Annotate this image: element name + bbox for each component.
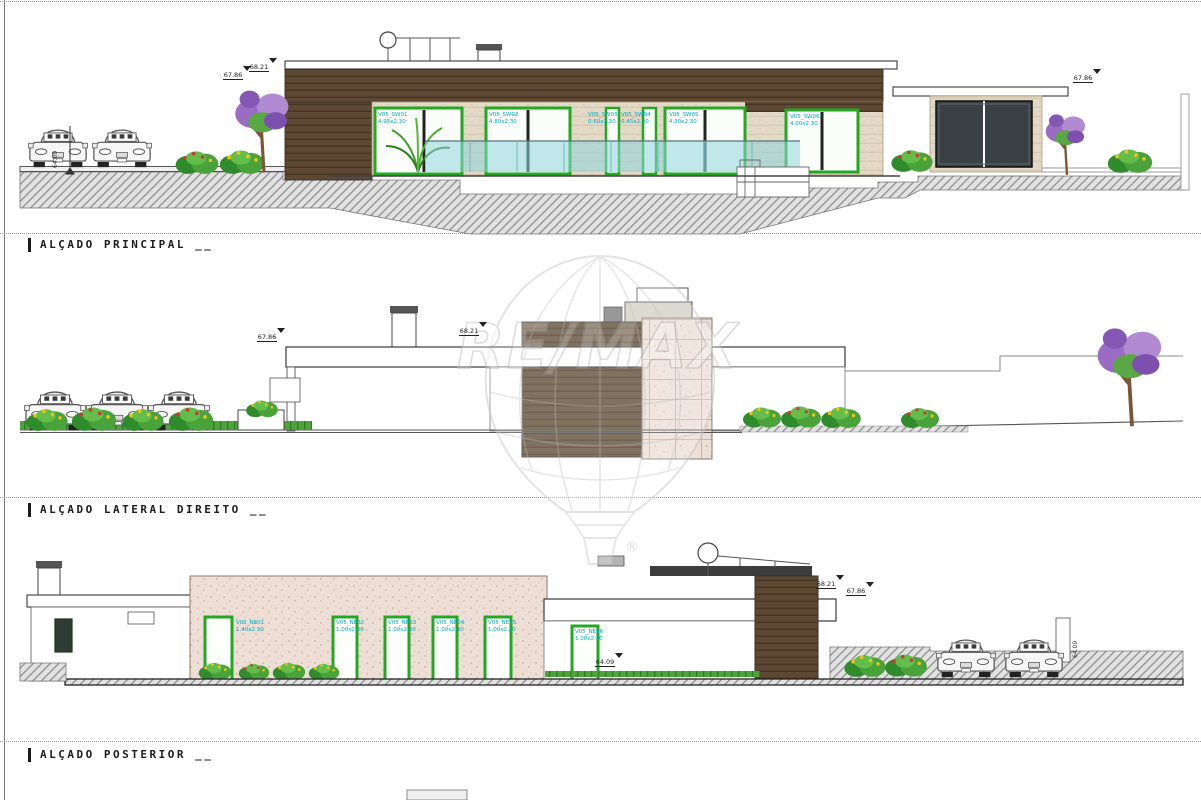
level-text-vertical: 64.09 <box>1072 641 1079 658</box>
planter-flowers <box>246 401 278 418</box>
title-alcado-principal: ALÇADO PRINCIPAL __ <box>28 238 213 252</box>
elevation-principal <box>20 32 1189 234</box>
flowering-tree <box>1046 114 1085 175</box>
title-alcado-posterior: ALÇADO POSTERIOR __ <box>28 748 213 762</box>
window-label-sw02: V05_SW024.80x2.30 <box>489 112 518 125</box>
car-icon <box>92 130 151 167</box>
annex-window <box>55 619 72 652</box>
window-label-sw01: V05_SW014.95x2.30 <box>378 112 407 125</box>
ground-line <box>65 679 1183 685</box>
level-marker: 67.86 <box>845 587 875 596</box>
level-marker: 68.21 <box>248 63 278 72</box>
roof-sphere <box>698 543 718 563</box>
roof-sphere <box>380 32 396 48</box>
level-marker: 67.86 <box>1072 74 1102 83</box>
window-label-sw06: V05_SW064.00x2.30 <box>790 114 819 127</box>
balloon-ropes <box>566 512 634 538</box>
wood-volume <box>755 576 818 681</box>
ground-hatch <box>20 172 1183 234</box>
roof-deck <box>650 566 812 576</box>
door-label-ne05: V05_NE051.00x2.30 <box>488 620 516 633</box>
roof-slab <box>285 61 897 69</box>
boundary-wall-right <box>1181 94 1189 190</box>
wood-wall-left <box>285 102 372 180</box>
chimney-cap <box>36 561 62 568</box>
window-label-sw03: V05_SW030.60x2.30 <box>588 112 617 125</box>
window-label-sw05: V05_SW054.30x2.30 <box>669 112 698 125</box>
flower-bush <box>901 408 939 428</box>
chimney <box>478 50 500 62</box>
level-marker: 68.21 <box>815 580 845 589</box>
door-label-ne03: V05_NE031.00x2.30 <box>388 620 416 633</box>
level-marker: 64.09 <box>594 658 624 667</box>
door-label-ne04: V05_NE041.00x2.30 <box>436 620 464 633</box>
car-icon <box>1004 640 1063 677</box>
shrub <box>891 150 932 172</box>
grass-strip <box>545 671 760 677</box>
shrub <box>176 151 219 174</box>
annex-roof-slab <box>27 595 197 607</box>
title-alcado-lateral-direito: ALÇADO LATERAL DIREITO __ <box>28 503 268 517</box>
architectural-sheet: RE/MAX ® ALÇADO PRINCIPAL __ ALÇADO LATE… <box>0 0 1201 800</box>
balloon-basket <box>584 538 616 564</box>
level-marker: 68.21 <box>458 327 488 336</box>
remax-watermark: RE/MAX ® <box>457 256 740 564</box>
ground-patch-left <box>20 663 66 681</box>
chimney-cap <box>476 44 502 50</box>
door-label-ne06: V05_NE061.00x2.30 <box>575 629 603 642</box>
wood-fascia <box>285 69 883 102</box>
annex-window <box>936 101 1032 167</box>
level-text-vertical: 64.09 <box>52 151 59 168</box>
level-marker: 67.86 <box>222 71 252 80</box>
registered-mark: ® <box>626 540 639 555</box>
annex-vent <box>128 612 154 624</box>
annex-roof-slab <box>893 87 1068 96</box>
car-icon <box>936 640 995 677</box>
level-marker: 67.86 <box>256 333 286 342</box>
wall-box <box>270 378 300 402</box>
chimney-cap <box>390 306 418 313</box>
chimney <box>38 568 60 595</box>
roof-railing <box>388 38 460 61</box>
flowering-tree <box>1098 328 1162 426</box>
door-label-ne02: V05_NE021.00x2.30 <box>336 620 364 633</box>
shrub <box>220 151 264 174</box>
chimney <box>392 313 416 347</box>
window-label-sw04: V05_SW040.45x2.30 <box>621 112 650 125</box>
door-label-ne01: V05_NE011.40x2.30 <box>236 620 264 633</box>
next-drawing-edge <box>407 790 467 800</box>
watermark-brand-text: RE/MAX <box>457 310 740 383</box>
shrub <box>1108 150 1152 173</box>
